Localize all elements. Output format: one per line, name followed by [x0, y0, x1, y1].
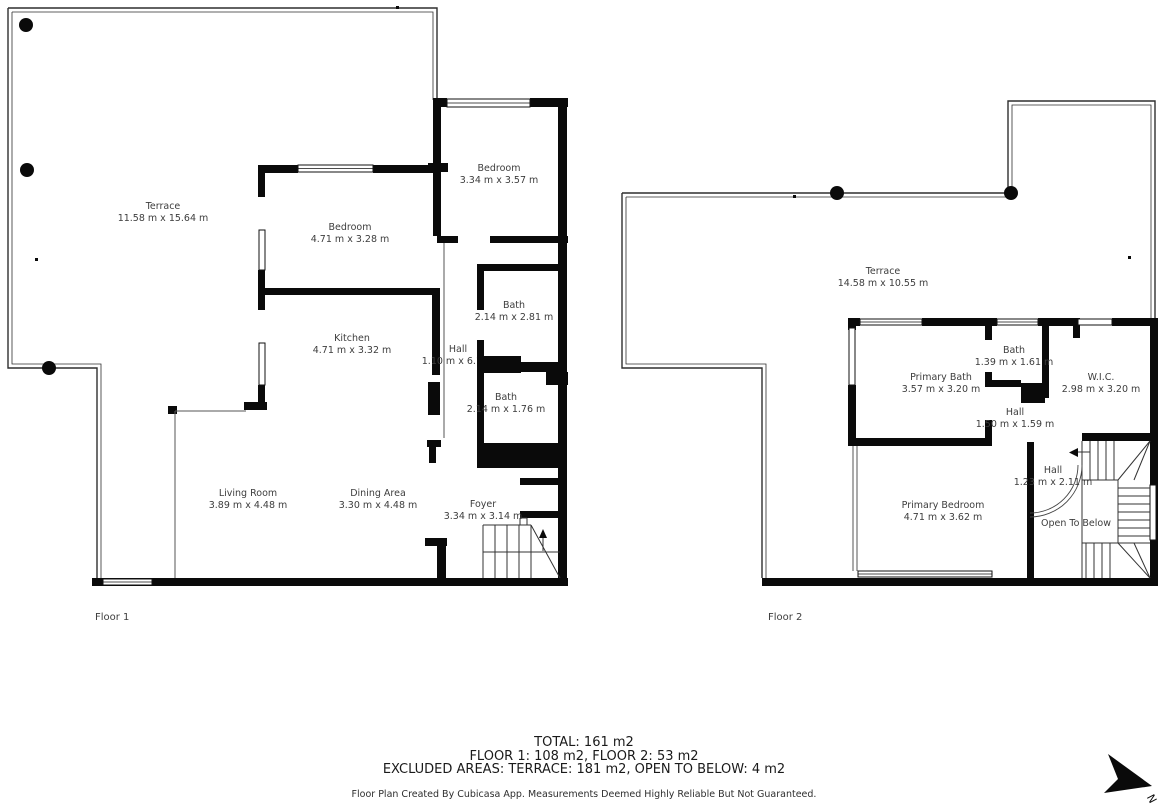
- floor2-plan: [622, 101, 1158, 586]
- room-label-bath-f2: Bath 1.39 m x 1.61 m: [975, 345, 1054, 368]
- disclaimer-text: Floor Plan Created By Cubicasa App. Meas…: [0, 789, 1168, 800]
- room-label-bedroom-mid-f1: Bedroom 4.71 m x 3.28 m: [311, 222, 390, 245]
- room-label-primary-bath-f2: Primary Bath 3.57 m x 3.20 m: [902, 372, 981, 395]
- room-label-terrace-f2: Terrace 14.58 m x 10.55 m: [838, 266, 929, 289]
- floor1-title: Floor 1: [95, 612, 129, 623]
- staircase-f2: [1069, 441, 1150, 578]
- floorplan-canvas: N Terrace 11.58 m x 15.64 m Bedroom 4.71…: [0, 0, 1168, 804]
- room-label-bedroom-top-f1: Bedroom 3.34 m x 3.57 m: [460, 163, 539, 186]
- room-label-kitchen-f1: Kitchen 4.71 m x 3.32 m: [313, 333, 392, 356]
- summary-total: TOTAL: 161 m2: [0, 736, 1168, 750]
- staircase-f1: [483, 518, 560, 578]
- terrace-columns-f1: [19, 6, 399, 375]
- room-label-foyer-f1: Foyer 3.34 m x 3.14 m: [444, 499, 523, 522]
- room-label-terrace-f1: Terrace 11.58 m x 15.64 m: [118, 201, 209, 224]
- boundary-lines-f2: [853, 446, 857, 571]
- room-label-wic-f2: W.I.C. 2.98 m x 3.20 m: [1062, 372, 1141, 395]
- room-label-living-room-f1: Living Room 3.89 m x 4.48 m: [209, 488, 288, 511]
- floor2-title: Floor 2: [768, 612, 802, 623]
- walls-f2: [762, 318, 1158, 586]
- summary-excluded: EXCLUDED AREAS: TERRACE: 181 m2, OPEN TO…: [0, 763, 1168, 777]
- room-label-bath1-f1: Bath 2.14 m x 2.81 m: [475, 300, 554, 323]
- room-label-primary-bedroom-f2: Primary Bedroom 4.71 m x 3.62 m: [902, 500, 985, 523]
- room-label-hall-lower-f2: Hall 1.23 m x 2.11 m: [1014, 465, 1093, 488]
- room-label-hall-upper-f2: Hall 1.50 m x 1.59 m: [976, 407, 1055, 430]
- room-label-bath2-f1: Bath 2.14 m x 1.76 m: [467, 392, 546, 415]
- room-label-dining-area-f1: Dining Area 3.30 m x 4.48 m: [339, 488, 418, 511]
- floorplan-drawing: N: [0, 0, 1168, 804]
- room-label-open-to-below-f2: Open To Below: [1041, 518, 1111, 530]
- wall-occluder-hall-f1: [477, 356, 521, 373]
